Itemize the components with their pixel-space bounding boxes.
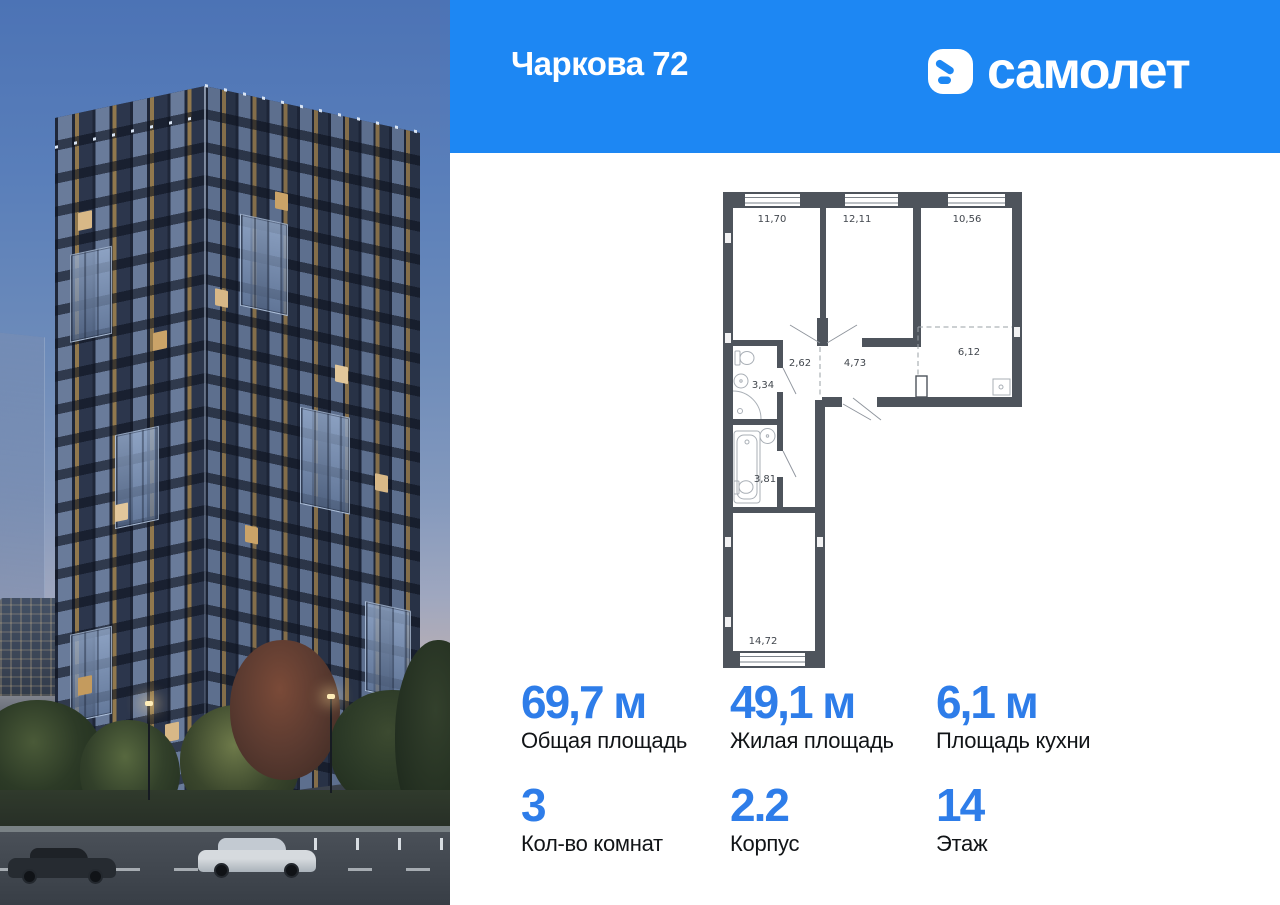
stat-label: Кол-во комнат	[521, 833, 663, 855]
floorplan: 11,70 12,11 10,56 2,62 4,73 6,12 3,34 3,…	[710, 185, 1030, 675]
stat-total-area: 69,7 м Общая площадь	[521, 677, 687, 752]
car-suv-white	[198, 838, 316, 878]
walls	[723, 192, 1022, 668]
brand-logo-text: самолет	[987, 46, 1189, 96]
balcony	[70, 246, 112, 343]
lit-window	[153, 330, 167, 351]
room-area-label: 11,70	[758, 214, 787, 225]
balcony	[300, 407, 350, 515]
tower-corner-edge	[204, 86, 206, 802]
entry-door-frame	[916, 376, 927, 397]
building-photo	[0, 0, 450, 905]
stat-value: 2.2	[730, 780, 799, 830]
project-title: Чаркова 72	[511, 47, 688, 80]
lit-window	[215, 288, 228, 308]
header-bar: Чаркова 72 самолет	[450, 0, 1280, 153]
room-area-label: 12,11	[843, 214, 872, 225]
balcony	[240, 214, 288, 316]
stat-value: 49,1 м	[730, 677, 894, 727]
listing-card: Чаркова 72 самолет	[0, 0, 1280, 905]
room-area-label: 6,12	[958, 347, 980, 358]
room-area-label: 10,56	[953, 214, 982, 225]
room-area-label: 3,34	[752, 380, 774, 391]
car-dark	[8, 848, 116, 884]
street-lamp	[330, 698, 332, 793]
lit-window	[78, 675, 92, 696]
stat-label: Площадь кухни	[936, 730, 1090, 752]
lit-window	[335, 364, 348, 384]
stat-value: 69,7 м	[521, 677, 687, 727]
stat-living-area: 49,1 м Жилая площадь	[730, 677, 894, 752]
room-area-label: 14,72	[749, 636, 778, 647]
samolet-logo-icon	[928, 49, 973, 94]
lit-window	[275, 191, 288, 211]
info-panel: Чаркова 72 самолет	[450, 0, 1280, 905]
stat-building: 2.2 Корпус	[730, 780, 799, 855]
lit-window	[115, 502, 128, 522]
room-area-label: 2,62	[789, 358, 811, 369]
stat-kitchen-area: 6,1 м Площадь кухни	[936, 677, 1090, 752]
stat-value: 6,1 м	[936, 677, 1090, 727]
lit-window	[78, 210, 92, 231]
stat-label: Корпус	[730, 833, 799, 855]
stat-label: Общая площадь	[521, 730, 687, 752]
stat-label: Этаж	[936, 833, 987, 855]
stat-floor: 14 Этаж	[936, 780, 987, 855]
room-area-labels: 11,70 12,11 10,56 2,62 4,73 6,12 3,34 3,…	[749, 214, 982, 647]
stat-value: 14	[936, 780, 987, 830]
window-openings	[725, 194, 1020, 666]
lit-window	[375, 473, 388, 493]
street-lamp	[148, 705, 150, 800]
stat-rooms-count: 3 Кол-во комнат	[521, 780, 663, 855]
room-area-label: 3,81	[754, 474, 776, 485]
lit-window	[245, 525, 258, 545]
room-area-label: 4,73	[844, 358, 866, 369]
stat-label: Жилая площадь	[730, 730, 894, 752]
brand-logo: самолет	[928, 46, 1189, 96]
tree-red	[230, 640, 340, 780]
stat-value: 3	[521, 780, 663, 830]
